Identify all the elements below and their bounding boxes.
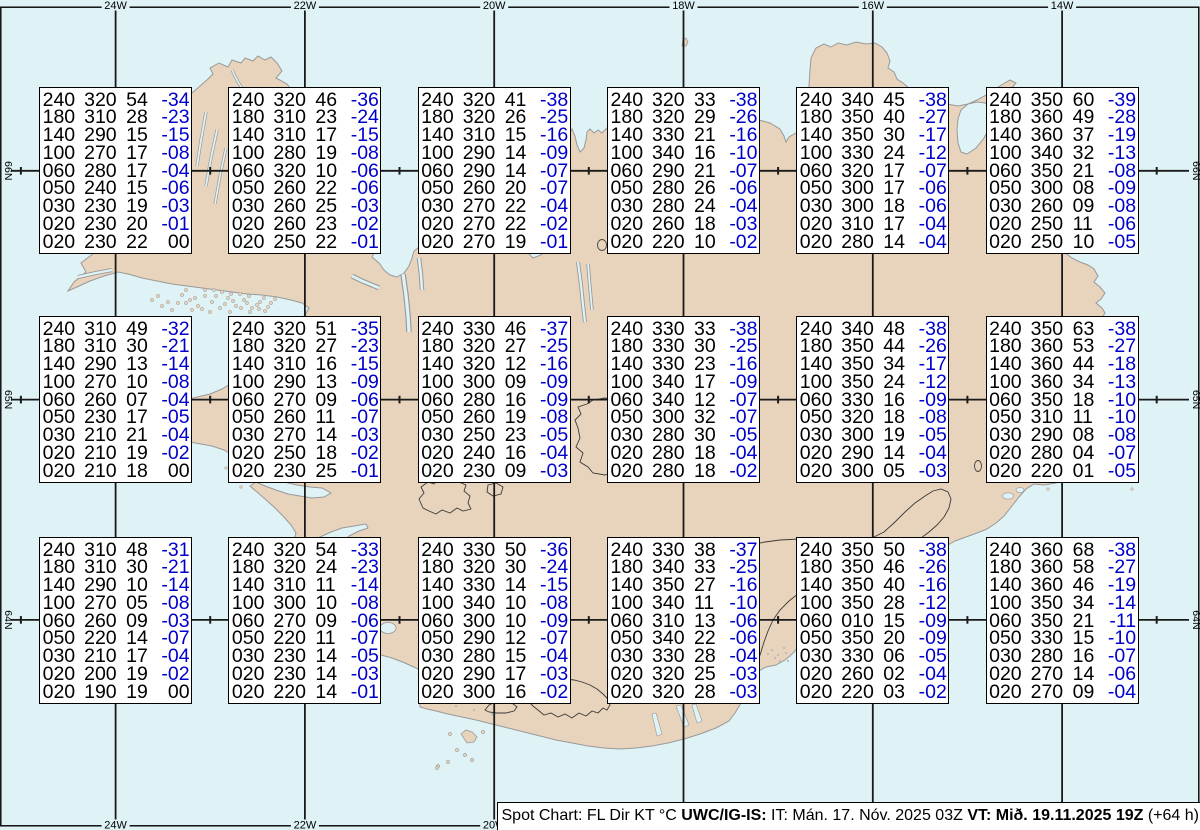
svg-text:22W: 22W [294, 820, 317, 830]
svg-text:14W: 14W [1051, 0, 1074, 12]
svg-text:66N: 66N [1190, 161, 1200, 180]
svg-text:24W: 24W [104, 0, 127, 12]
svg-text:64N: 64N [1190, 610, 1200, 629]
svg-text:16W: 16W [861, 0, 884, 12]
svg-text:18W: 18W [672, 0, 695, 12]
svg-text:20W: 20W [483, 0, 506, 12]
svg-text:66N: 66N [2, 161, 14, 180]
svg-text:65N: 65N [1190, 390, 1200, 409]
svg-text:22W: 22W [294, 0, 317, 12]
svg-text:64N: 64N [2, 610, 14, 629]
svg-text:65N: 65N [2, 390, 14, 409]
svg-text:24W: 24W [104, 820, 127, 830]
